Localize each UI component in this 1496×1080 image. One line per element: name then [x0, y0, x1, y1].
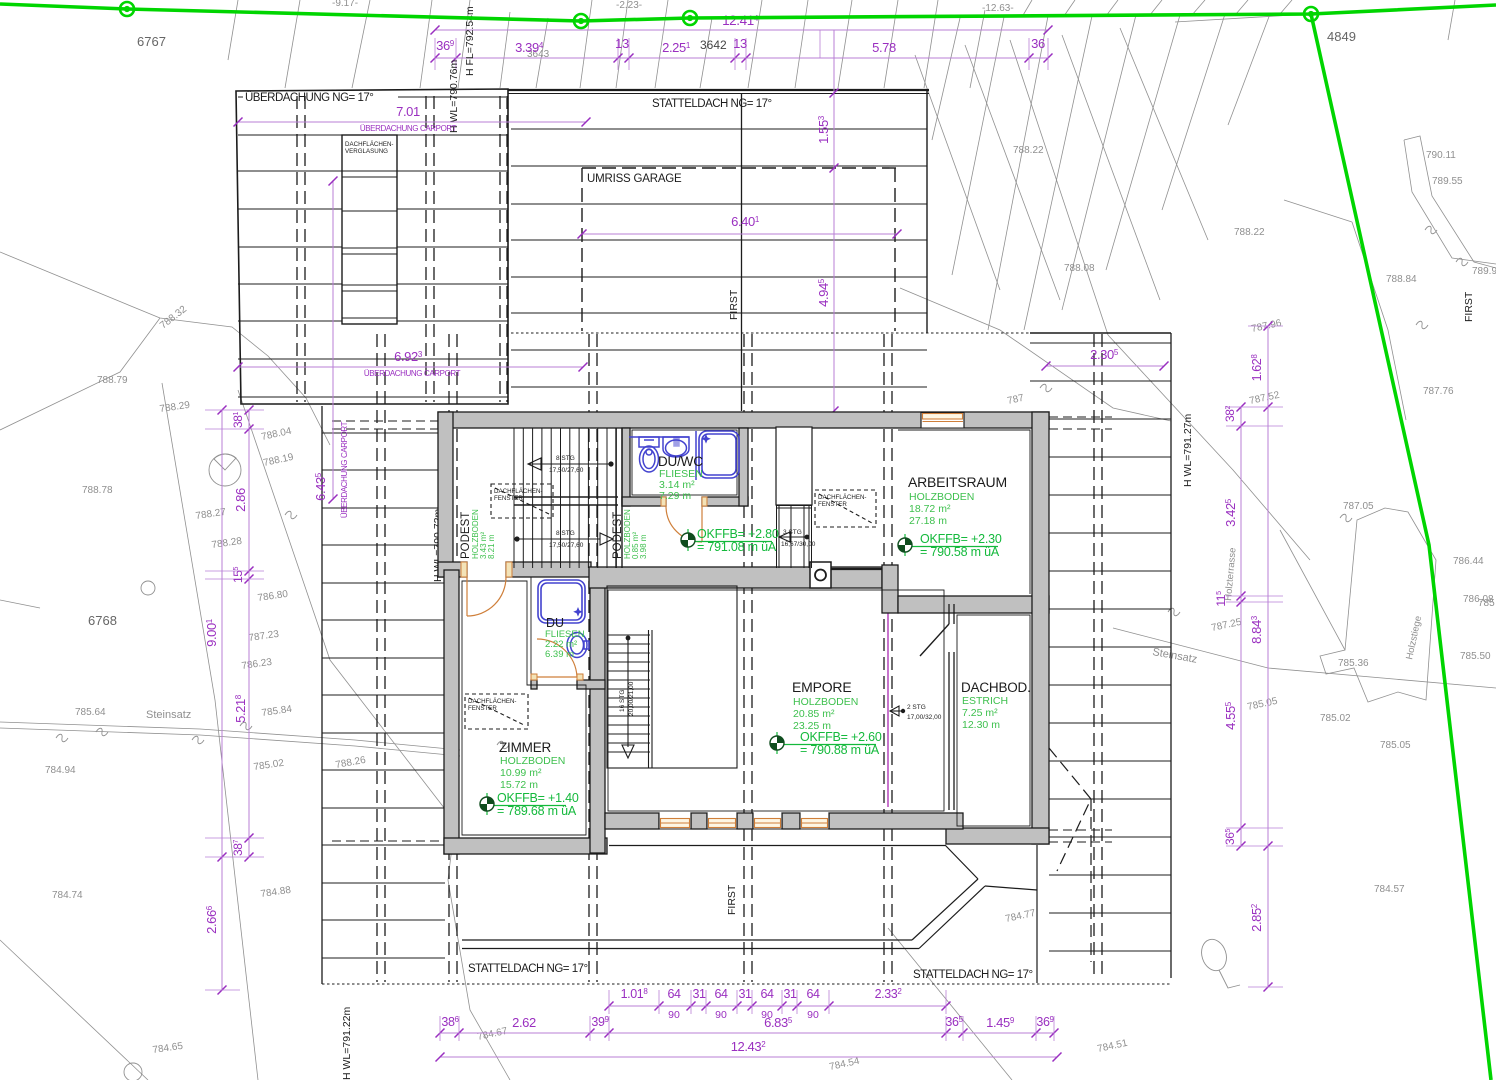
svg-text:FENSTER: FENSTER: [818, 501, 847, 508]
svg-text:13: 13: [615, 36, 629, 51]
svg-text:3.98 m: 3.98 m: [639, 534, 648, 559]
svg-text:18.72 m²: 18.72 m²: [909, 503, 951, 515]
svg-text:H WL=791.22m: H WL=791.22m: [341, 1007, 353, 1080]
svg-text:785.02: 785.02: [1320, 713, 1351, 724]
svg-text:36: 36: [1031, 36, 1045, 51]
svg-text:64: 64: [714, 987, 728, 1001]
svg-text:2.62: 2.62: [512, 1015, 536, 1030]
svg-text:HOLZBODEN: HOLZBODEN: [793, 696, 858, 708]
svg-text:6768: 6768: [88, 613, 117, 628]
svg-text:-12.63-: -12.63-: [982, 3, 1014, 14]
svg-text:785.50: 785.50: [1460, 651, 1491, 662]
svg-text:OKFFB= +2.30: OKFFB= +2.30: [920, 532, 1002, 546]
svg-text:31: 31: [692, 987, 706, 1001]
svg-text:FIRST: FIRST: [728, 289, 740, 320]
svg-text:64: 64: [760, 987, 774, 1001]
svg-text:ÜBERDACHUNG CARPORT: ÜBERDACHUNG CARPORT: [364, 369, 461, 378]
svg-text:788.84: 788.84: [1386, 274, 1417, 285]
svg-text:788.79: 788.79: [97, 375, 128, 386]
svg-text:7.01: 7.01: [396, 104, 420, 119]
svg-text:15.72 m: 15.72 m: [500, 779, 538, 791]
svg-text:UMRISS GARAGE: UMRISS GARAGE: [587, 173, 682, 185]
svg-text:OKFFB= +2.80: OKFFB= +2.80: [697, 527, 779, 541]
svg-text:784.74: 784.74: [52, 890, 83, 901]
svg-text:DACHFLÄCHEN-: DACHFLÄCHEN-: [818, 494, 866, 501]
svg-text:90: 90: [715, 1009, 727, 1021]
svg-text:HOLZBODEN: HOLZBODEN: [909, 491, 974, 503]
svg-text:789.55: 789.55: [1432, 176, 1463, 187]
svg-text:3642: 3642: [700, 38, 727, 52]
svg-text:12.414: 12.414: [722, 13, 759, 28]
svg-text:ÜBERDACHUNG CARPORT: ÜBERDACHUNG CARPORT: [360, 124, 457, 133]
svg-text:787.05: 787.05: [1343, 501, 1374, 512]
svg-text:DACHFLÄCHEN-: DACHFLÄCHEN-: [468, 698, 516, 705]
svg-text:7.25 m²: 7.25 m²: [962, 707, 998, 719]
svg-text:790.11: 790.11: [1426, 150, 1456, 161]
svg-text:FIRST: FIRST: [726, 884, 738, 915]
svg-text:HOLZBODEN: HOLZBODEN: [500, 755, 565, 767]
svg-text:7.29 m: 7.29 m: [659, 490, 691, 502]
svg-text:ZIMMER: ZIMMER: [499, 740, 551, 755]
svg-text:Steinsatz: Steinsatz: [146, 709, 191, 721]
svg-text:ÜBERDACHUNG NG= 17°: ÜBERDACHUNG NG= 17°: [245, 92, 373, 104]
svg-text:STATTELDACH NG= 17°: STATTELDACH NG= 17°: [652, 98, 772, 110]
svg-text:90: 90: [668, 1009, 680, 1021]
svg-text:31: 31: [783, 987, 797, 1001]
svg-text:STATTELDACH NG= 17°: STATTELDACH NG= 17°: [468, 963, 588, 975]
svg-text:785.36: 785.36: [1338, 658, 1369, 669]
svg-text:20.85 m²: 20.85 m²: [793, 708, 835, 720]
svg-text:17,50/27,60: 17,50/27,60: [549, 542, 584, 549]
svg-text:786.44: 786.44: [1453, 556, 1484, 567]
svg-text:DU/WC: DU/WC: [658, 454, 703, 469]
svg-text:EMPORE: EMPORE: [792, 679, 851, 695]
svg-text:785.64: 785.64: [75, 707, 106, 718]
svg-text:785.05: 785.05: [1380, 740, 1411, 751]
svg-text:789.9: 789.9: [1472, 266, 1496, 277]
svg-text:DACHFLÄCHEN-: DACHFLÄCHEN-: [494, 488, 542, 495]
svg-text:20,00/21,00: 20,00/21,00: [628, 681, 635, 716]
svg-text:64: 64: [667, 987, 681, 1001]
svg-text:6.39 m: 6.39 m: [545, 649, 574, 660]
svg-text:H WL=791.27m: H WL=791.27m: [1182, 414, 1194, 487]
svg-text:64: 64: [806, 987, 820, 1001]
svg-text:17,00/32,00: 17,00/32,00: [907, 714, 942, 721]
svg-text:13: 13: [733, 36, 747, 51]
svg-text:3 STG: 3 STG: [783, 529, 802, 536]
svg-text:6767: 6767: [137, 34, 166, 49]
svg-text:FENSTER: FENSTER: [494, 495, 523, 502]
svg-text:12.432: 12.432: [731, 1039, 767, 1054]
svg-text:OKFFB= +2.60: OKFFB= +2.60: [800, 730, 882, 744]
svg-text:-9.17-: -9.17-: [332, 0, 358, 9]
svg-text:ÜBERDACHUNG CARPORT: ÜBERDACHUNG CARPORT: [340, 421, 349, 518]
svg-text:90: 90: [807, 1009, 819, 1021]
svg-text:DACHBOD.: DACHBOD.: [961, 680, 1031, 695]
svg-text:16,67/30,00: 16,67/30,00: [781, 541, 816, 548]
svg-text:788.22: 788.22: [1234, 227, 1265, 238]
svg-text:17,50/27,60: 17,50/27,60: [549, 467, 584, 474]
svg-text:-2.23-: -2.23-: [616, 0, 642, 11]
svg-text:8.21 m: 8.21 m: [487, 534, 496, 559]
svg-text:788.22: 788.22: [1013, 145, 1044, 156]
svg-text:DACHFLÄCHEN-: DACHFLÄCHEN-: [345, 141, 393, 148]
svg-text:784.57: 784.57: [1374, 884, 1405, 895]
svg-text:2 STG: 2 STG: [907, 704, 926, 711]
svg-text:8 STG: 8 STG: [556, 530, 575, 537]
svg-text:STATTELDACH NG= 17°: STATTELDACH NG= 17°: [913, 969, 1033, 981]
svg-text:785: 785: [1478, 598, 1495, 609]
svg-text:ARBEITSRAUM: ARBEITSRAUM: [908, 474, 1007, 490]
svg-text:OKFFB= +1.40: OKFFB= +1.40: [497, 791, 579, 805]
svg-text:4849: 4849: [1327, 29, 1356, 44]
svg-text:788.78: 788.78: [82, 485, 113, 496]
svg-text:DU: DU: [546, 616, 564, 630]
svg-text:ESTRICH: ESTRICH: [962, 695, 1008, 707]
svg-text:10.99 m²: 10.99 m²: [500, 767, 542, 779]
svg-text:31: 31: [738, 987, 752, 1001]
svg-text:VERGLASUNG: VERGLASUNG: [345, 148, 388, 155]
svg-text:16 STG: 16 STG: [619, 690, 626, 712]
svg-text:27.18 m: 27.18 m: [909, 515, 947, 527]
svg-text:788.08: 788.08: [1064, 263, 1095, 274]
svg-text:5.78: 5.78: [872, 40, 896, 55]
svg-text:787.76: 787.76: [1423, 386, 1454, 397]
svg-text:12.30 m: 12.30 m: [962, 719, 1000, 731]
svg-text:FENSTER: FENSTER: [468, 705, 497, 712]
svg-text:8 STG: 8 STG: [556, 455, 575, 462]
svg-text:784.94: 784.94: [45, 765, 76, 776]
svg-text:2.86: 2.86: [233, 488, 248, 512]
svg-text:FIRST: FIRST: [1463, 291, 1475, 322]
